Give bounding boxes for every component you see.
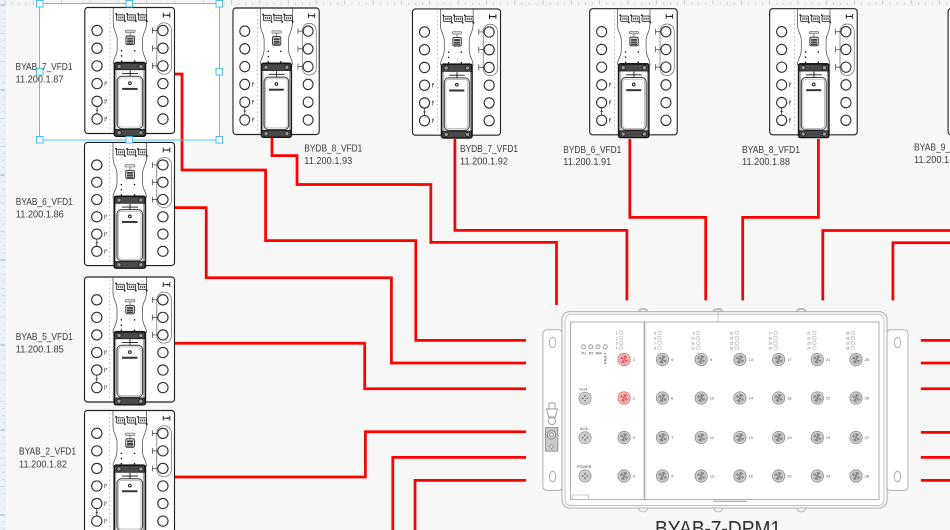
svg-text:11.200.1.85: 11.200.1.85 [16,345,64,356]
svg-text:14: 14 [730,336,734,340]
svg-text:26: 26 [865,396,870,401]
svg-text:24: 24 [807,347,811,351]
svg-text:11.200.1.88: 11.200.1.88 [742,157,790,168]
svg-text:21: 21 [807,331,811,335]
svg-text:5: 5 [654,331,656,335]
svg-text:12: 12 [691,347,695,351]
svg-text:8: 8 [654,347,656,351]
svg-text:FAULT: FAULT [604,352,608,364]
svg-text:10: 10 [710,396,715,401]
svg-text:V-24: V-24 [580,388,588,392]
svg-text:20: 20 [787,474,792,479]
svg-text:4: 4 [616,347,618,351]
svg-text:1: 1 [616,331,618,335]
svg-text:BYAB_2_VFD1: BYAB_2_VFD1 [19,447,76,458]
svg-text:22: 22 [826,396,831,401]
svg-text:28: 28 [846,347,850,351]
svg-text:ACA: ACA [580,427,588,431]
svg-text:11.200.1.92: 11.200.1.92 [460,156,508,167]
svg-text:25: 25 [846,331,850,335]
svg-text:6: 6 [654,336,656,340]
svg-text:13: 13 [730,331,734,335]
svg-text:P1: P1 [582,352,587,356]
svg-text:22: 22 [807,336,811,340]
svg-text:17: 17 [787,357,792,362]
svg-text:13: 13 [749,357,754,362]
svg-text:23: 23 [807,342,811,346]
svg-text:11: 11 [691,342,695,346]
svg-text:3: 3 [616,342,618,346]
svg-text:BYAB_6_VFD1: BYAB_6_VFD1 [16,197,73,208]
svg-text:BYDB_6_VFD1: BYDB_6_VFD1 [563,145,621,156]
svg-text:20: 20 [768,347,772,351]
svg-text:BYAB-7-DPM1: BYAB-7-DPM1 [655,518,781,530]
svg-text:9: 9 [693,331,695,335]
svg-text:15: 15 [749,435,754,440]
svg-text:P2: P2 [589,352,594,356]
svg-text:11.200.1.93: 11.200.1.93 [304,156,352,167]
svg-text:23: 23 [826,435,831,440]
svg-text:POWER: POWER [577,465,592,469]
svg-text:16: 16 [730,347,734,351]
svg-text:BYAB_8_VFD1: BYAB_8_VFD1 [742,145,800,156]
svg-text:27: 27 [865,435,870,440]
svg-text:25: 25 [865,357,870,362]
svg-text:26: 26 [846,336,850,340]
svg-text:18: 18 [768,336,772,340]
svg-text:10: 10 [691,336,695,340]
svg-text:12: 12 [710,474,715,479]
svg-text:17: 17 [768,331,772,335]
svg-text:16: 16 [749,474,754,479]
svg-text:BYDB_8_VFD1: BYDB_8_VFD1 [304,144,362,155]
svg-text:BYAB_7_VFD1: BYAB_7_VFD1 [16,62,73,73]
svg-text:BYAB_9_VFD1: BYAB_9_VFD1 [914,143,950,154]
svg-text:28: 28 [865,474,870,479]
svg-text:RM: RM [596,352,602,356]
svg-text:15: 15 [730,342,734,346]
svg-text:21: 21 [826,357,831,362]
svg-text:BYAB_5_VFD1: BYAB_5_VFD1 [16,332,73,343]
svg-text:BYDB_7_VFD1: BYDB_7_VFD1 [460,144,518,155]
svg-text:14: 14 [749,396,754,401]
svg-text:18: 18 [787,396,792,401]
svg-text:27: 27 [846,342,850,346]
svg-text:11.200.1.89: 11.200.1.89 [914,155,950,166]
svg-text:2: 2 [616,336,618,340]
svg-text:11.200.1.82: 11.200.1.82 [19,459,67,470]
svg-text:11.200.1.91: 11.200.1.91 [563,157,611,168]
svg-text:24: 24 [826,474,831,479]
svg-text:11.200.1.86: 11.200.1.86 [16,210,64,221]
svg-text:19: 19 [787,435,792,440]
svg-text:19: 19 [768,342,772,346]
svg-text:7: 7 [654,342,656,346]
